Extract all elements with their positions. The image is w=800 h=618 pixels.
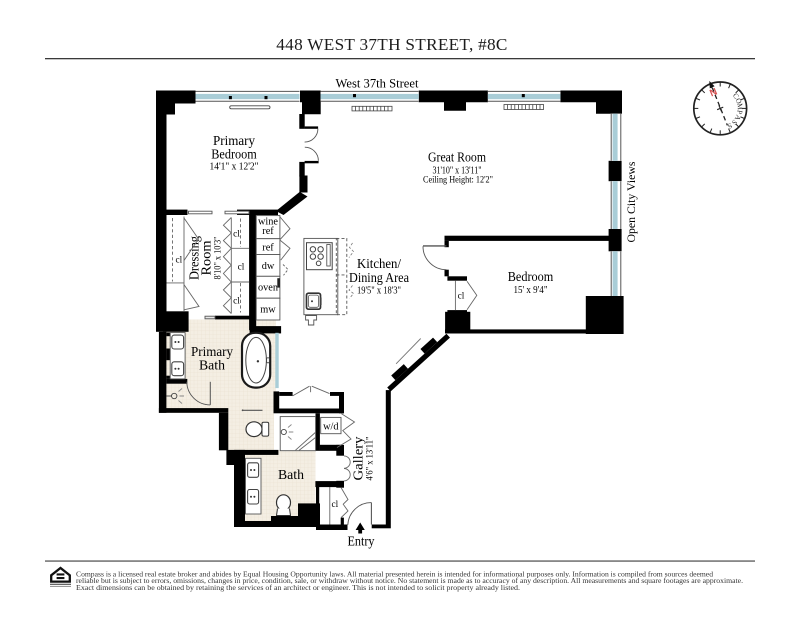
svg-text:ref: ref — [262, 226, 274, 237]
svg-text:Gallery: Gallery — [351, 436, 366, 480]
svg-text:cl: cl — [238, 263, 245, 273]
svg-text:West 37th Street: West 37th Street — [336, 77, 419, 91]
svg-text:Bedroom: Bedroom — [211, 147, 257, 162]
svg-text:Open City Views: Open City Views — [624, 161, 638, 242]
svg-text:448 WEST 37TH STREET, #8C: 448 WEST 37TH STREET, #8C — [276, 35, 507, 54]
svg-text:cl: cl — [458, 291, 465, 301]
svg-text:Entry: Entry — [348, 534, 375, 549]
svg-text:dw: dw — [262, 261, 275, 272]
svg-text:Exact dimensions can be obtain: Exact dimensions can be obtained by reta… — [76, 585, 520, 592]
svg-text:Dining Area: Dining Area — [349, 270, 409, 285]
svg-text:Bath: Bath — [199, 358, 225, 373]
svg-text:w/d: w/d — [323, 422, 339, 433]
svg-text:cl: cl — [331, 500, 338, 510]
svg-text:cl: cl — [175, 256, 182, 266]
svg-text:Great Room: Great Room — [428, 150, 486, 165]
svg-text:8'10" x 10'3": 8'10" x 10'3" — [213, 237, 224, 280]
svg-text:Kitchen/: Kitchen/ — [357, 256, 401, 271]
svg-text:15' x 9'4": 15' x 9'4" — [514, 285, 548, 296]
svg-text:mw: mw — [260, 305, 276, 316]
svg-text:Ceiling Height: 12'2": Ceiling Height: 12'2" — [423, 176, 493, 186]
svg-text:Bedroom: Bedroom — [508, 269, 554, 284]
svg-text:19'5" x 18'3": 19'5" x 18'3" — [357, 286, 401, 297]
svg-text:cl: cl — [233, 230, 240, 240]
svg-text:ref: ref — [262, 243, 274, 254]
svg-text:Bath: Bath — [278, 467, 304, 482]
svg-text:oven: oven — [258, 283, 278, 294]
svg-text:14'1" x 12'2": 14'1" x 12'2" — [210, 162, 259, 173]
svg-text:cl: cl — [233, 297, 240, 307]
svg-text:Room: Room — [199, 240, 214, 276]
svg-text:4'6" x 13'11": 4'6" x 13'11" — [365, 437, 376, 481]
